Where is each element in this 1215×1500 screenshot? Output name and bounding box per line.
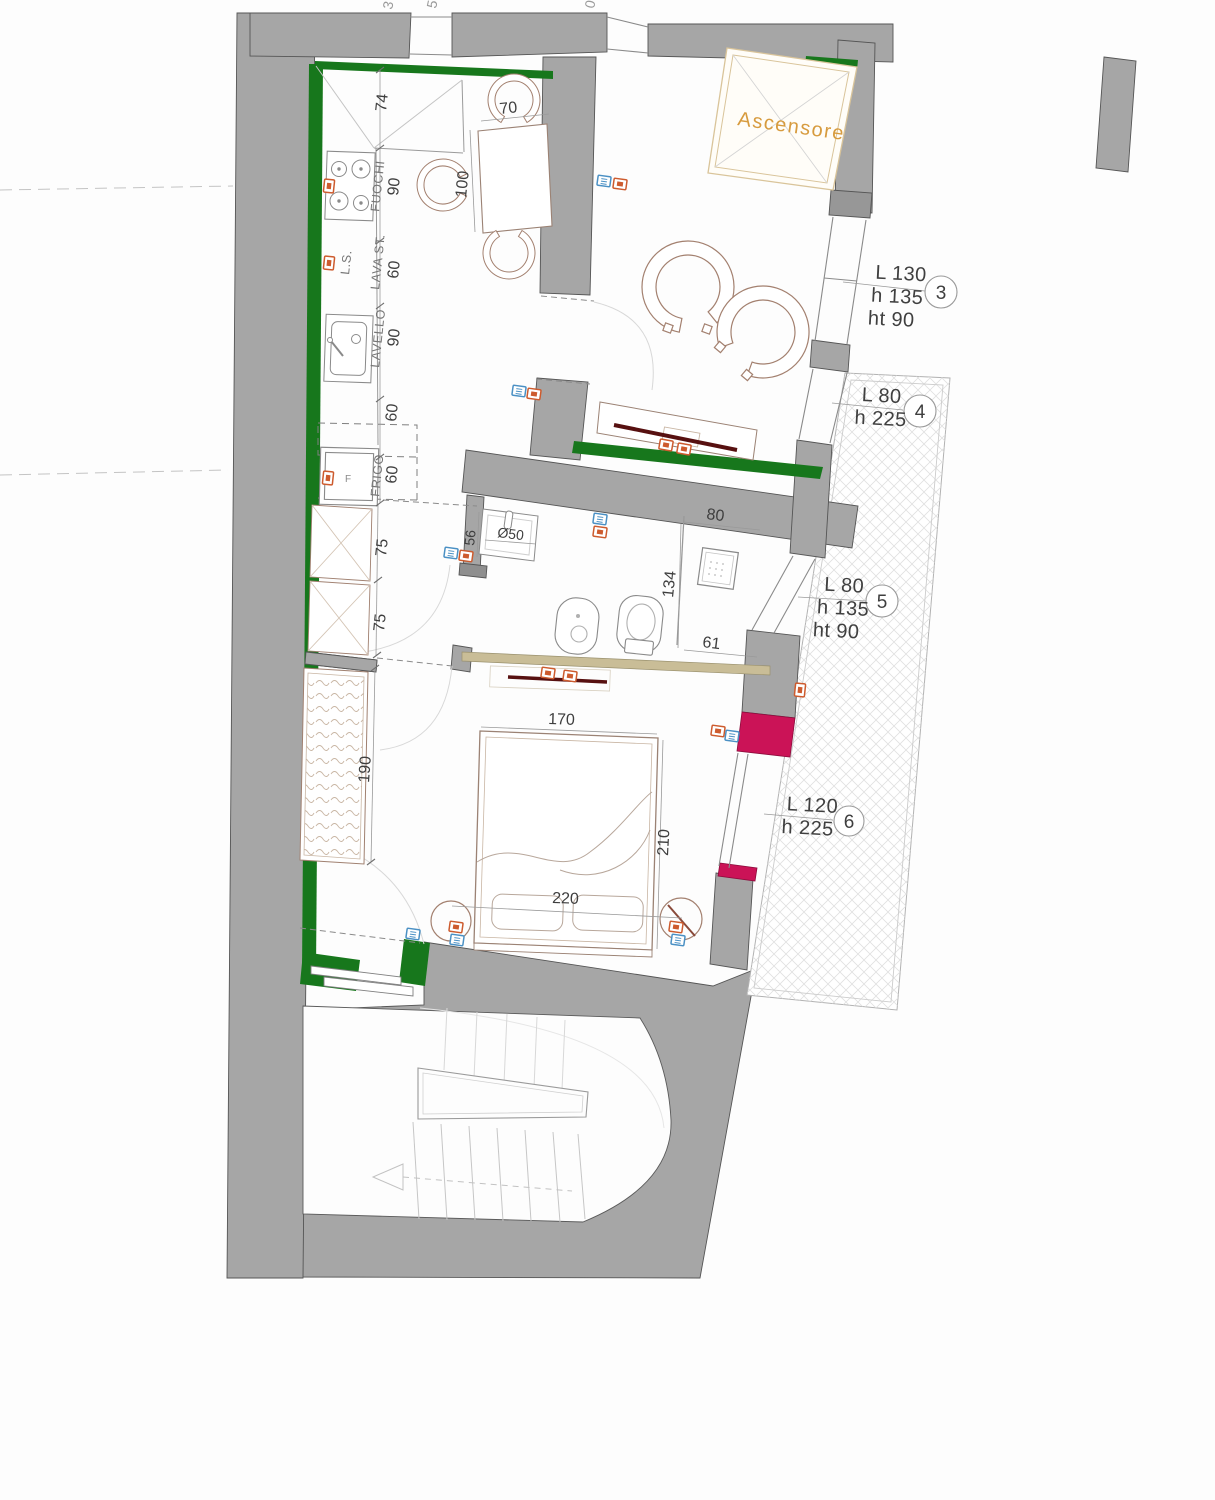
socket-icon [613, 178, 627, 190]
socket-icon [794, 683, 805, 697]
dim-d50: Ø50 [497, 524, 525, 543]
dim-134: 134 [660, 570, 680, 598]
dim-90b: 90 [385, 328, 404, 348]
socket-icon [322, 471, 333, 485]
socket-icon [593, 526, 607, 538]
socket-icon [459, 550, 473, 562]
wall-right-c [790, 440, 832, 558]
socket-icon [527, 388, 541, 400]
toilet [615, 594, 665, 656]
wall-right-b [810, 340, 850, 372]
floor-plan-drawing: Ascensore F [0, 0, 1215, 1500]
ann-5-h: h 135 [817, 596, 870, 621]
ann-5-ht: ht 90 [812, 619, 860, 643]
wall-bath-stub-cap [459, 563, 487, 578]
dim-74: 74 [373, 93, 392, 113]
ann-3-l: L 130 [875, 262, 927, 287]
dim-56: 56 [461, 529, 479, 546]
magenta-wall-1 [737, 712, 795, 757]
dim-60a: 60 [385, 260, 404, 280]
opening-num-5: 5 [877, 592, 888, 613]
fridge-letter: F [345, 474, 351, 485]
stairwell [303, 1006, 671, 1222]
ann-6-h: h 225 [781, 816, 834, 841]
wall-top-b [452, 13, 607, 57]
edge-text-fragments: 3 5 0 [379, 0, 598, 11]
socket-icon [563, 670, 577, 682]
label-lava-st: LAVA ST. [368, 233, 388, 290]
reference-lines [0, 186, 233, 475]
opening-6 [719, 753, 748, 868]
switch-icon [725, 730, 739, 742]
floor-plan-page: Ascensore F [0, 0, 1215, 1500]
entry-sliding-door [311, 966, 413, 996]
partition-tan [462, 652, 770, 675]
kitchen-table [417, 74, 552, 279]
ann-5-l: L 80 [824, 574, 865, 598]
socket-icon [323, 179, 334, 193]
switch-icon [597, 175, 611, 187]
ann-3-h: h 135 [871, 285, 924, 310]
edge-fragment: 3 [379, 0, 396, 11]
opening-num-6: 6 [844, 812, 855, 833]
dim-60c: 60 [383, 465, 402, 485]
opening-3 [815, 217, 866, 344]
room-living [597, 231, 809, 460]
ann-6-l: L 120 [786, 793, 838, 818]
armchair [632, 231, 809, 380]
wall-fragment [1096, 57, 1136, 172]
room-kitchen: F [308, 66, 552, 655]
opening-num-4: 4 [915, 402, 926, 423]
shower [677, 516, 738, 645]
dim-90a: 90 [385, 177, 404, 197]
opening-num-3: 3 [936, 283, 947, 304]
switch-icon [406, 928, 420, 940]
dim-170: 170 [548, 711, 575, 729]
bidet [553, 596, 601, 656]
dim-190: 190 [356, 755, 375, 783]
kitchen-sink [324, 314, 373, 383]
socket-icon [323, 256, 334, 270]
dim-80: 80 [706, 506, 726, 525]
switch-icon [444, 547, 458, 559]
switch-icon [671, 934, 685, 946]
dim-210: 210 [655, 829, 673, 857]
wall-right-e [710, 873, 753, 970]
ann-3-ht: ht 90 [867, 307, 915, 331]
room-bedroom [300, 666, 702, 957]
wall-left [227, 13, 315, 1278]
switch-icon [512, 385, 526, 397]
switch-icon [450, 934, 464, 946]
socket-icon [541, 667, 555, 679]
wall-top-a [250, 13, 411, 58]
dim-220: 220 [552, 890, 579, 908]
dim-100: 100 [453, 170, 473, 198]
edge-fragment: 5 [423, 0, 440, 10]
dim-75a: 75 [373, 538, 392, 558]
edge-fragment: 0 [581, 0, 598, 10]
ann-4-l: L 80 [861, 384, 902, 408]
bed [474, 731, 658, 957]
socket-icon [669, 921, 683, 933]
socket-icon [449, 921, 463, 933]
dim-61: 61 [702, 634, 722, 653]
ann-4-h: h 225 [854, 407, 907, 432]
switch-icon [593, 513, 607, 525]
socket-icon [677, 443, 692, 455]
elevator-shaft: Ascensore [708, 48, 857, 190]
label-ls: L.S. [338, 249, 354, 275]
dim-60b: 60 [383, 403, 402, 423]
wall-elevator-cap [829, 190, 872, 218]
socket-icon [711, 725, 725, 737]
socket-icon [659, 439, 674, 451]
dim-70: 70 [499, 99, 519, 118]
dim-75b: 75 [371, 613, 390, 633]
